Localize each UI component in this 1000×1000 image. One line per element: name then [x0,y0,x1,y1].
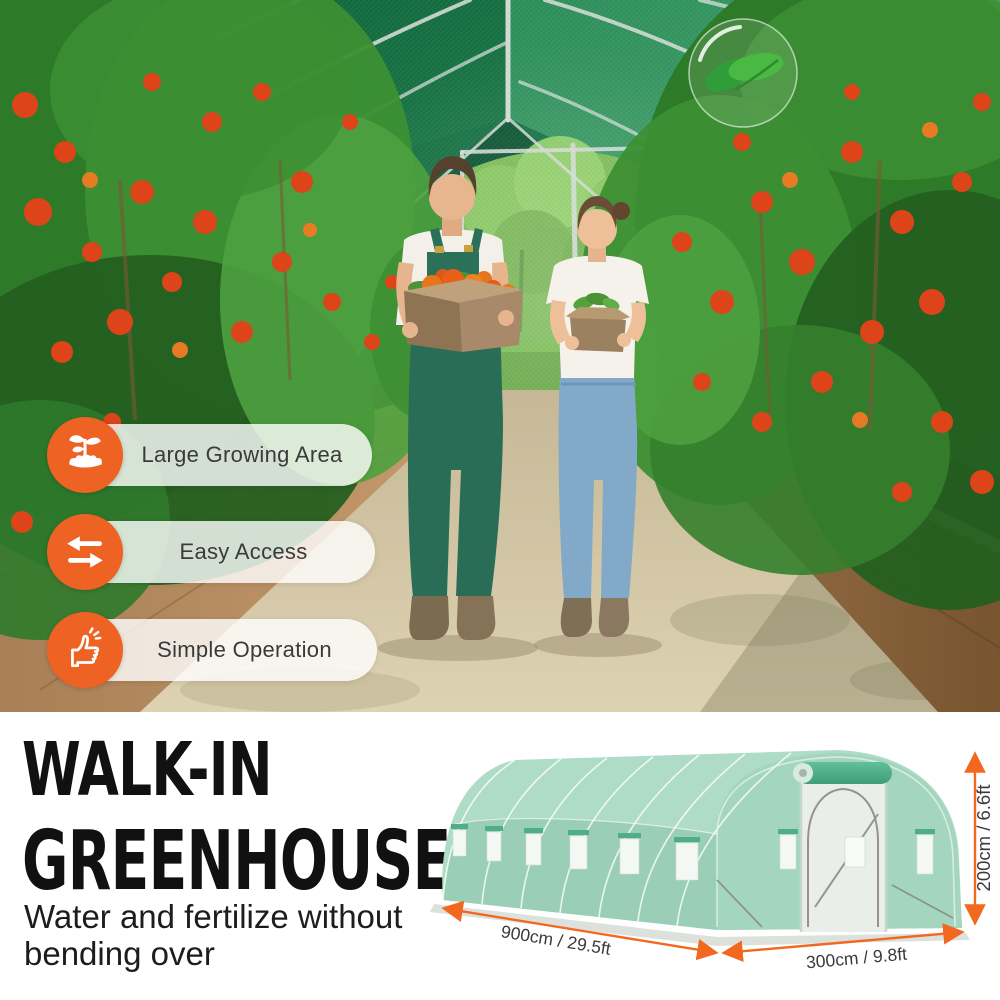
title-line-1: WALK-IN [22,726,469,814]
product-marketing-image: Large Growing Area Easy Access Simple Op… [0,0,1000,1000]
greenhouse-photo-art [0,0,1000,712]
dim-width-label: 300cm / 9.8ft [805,944,908,973]
feature-label: Simple Operation [95,637,332,663]
title-line-2: GREENHOUSE [22,814,451,910]
door [793,762,892,932]
feature-badge-1 [47,417,123,493]
feature-label: Easy Access [117,539,307,565]
swap-arrows-icon [62,529,108,575]
feature-badge-2 [47,514,123,590]
product-subtitle: Water and fertilize without bending over [24,898,494,972]
greenhouse-photo: Large Growing Area Easy Access Simple Op… [0,0,1000,712]
eco-leaf-bubble-icon [689,19,797,127]
thumbs-up-icon [62,627,108,673]
feature-badge-3 [47,612,123,688]
dim-height-label: 200cm / 6.6ft [973,785,994,892]
greenhouse-dimension-diagram: 900cm / 29.5ft 300cm / 9.8ft 200cm / 6.6… [430,722,1000,990]
seedling-icon [62,432,108,478]
greenhouse-diagram-art: 900cm / 29.5ft 300cm / 9.8ft 200cm / 6.6… [430,722,1000,990]
